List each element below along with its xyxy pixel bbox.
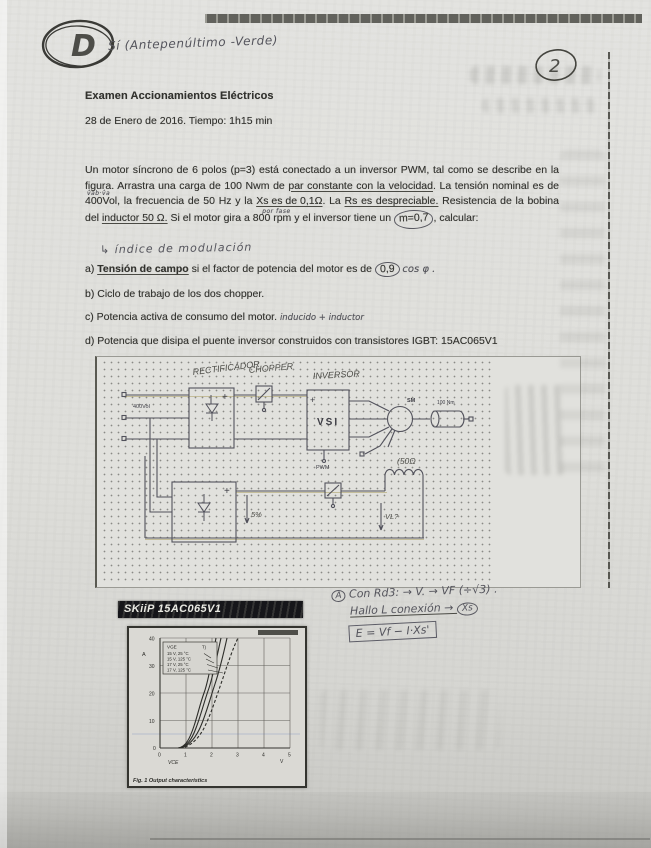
question-c: c) Potencia activa de consumo del motor.… (85, 311, 364, 323)
load-label: 100 Nm (437, 400, 455, 406)
underlined-rs: Rs es despreciable. (345, 195, 439, 207)
field-chopper-igbt-symbol (325, 483, 341, 508)
output-characteristics-svg: VGE Tj 15 V, 25 °C 15 V, 125 °C 17 V, 25… (130, 630, 302, 772)
page-number-circle: 2 (533, 46, 579, 84)
x-tick: 5 (288, 753, 291, 759)
handwritten-inducido-inductor: inducido + inductor (280, 313, 364, 323)
question-b: b) Ciclo de trabajo de los dos chopper. (85, 288, 264, 300)
circuit-figure: 400Vol + + VSI PWM SM 100 Nm + RECTIFICA… (95, 356, 581, 588)
legend-header-tj: Tj (202, 645, 206, 650)
input-voltage-label: 400Vol (133, 404, 150, 410)
hand-inversor: INVERSOR (313, 369, 361, 381)
hand-50ohm: (50Ω (397, 456, 416, 466)
y-tick: 0 (153, 746, 156, 752)
voltage-value: 400Volv̂ab·v̂a (85, 194, 117, 210)
underlined-inductor: inductor 50 Ω. (102, 212, 168, 224)
rectifier-plus: + (222, 392, 228, 403)
handwritten-cos-phi: cos φ . (402, 264, 435, 275)
circuit-wires (122, 386, 473, 542)
bottom-scan-line (150, 838, 650, 840)
datasheet-graph: VGE Tj 15 V, 25 °C 15 V, 125 °C 17 V, 25… (127, 626, 307, 788)
exam-date-line: 28 de Enero de 2016. Tiempo: 1h15 min (85, 115, 272, 127)
legend-row: 17 V, 125 °C (167, 668, 191, 673)
bleedthrough-smudge (482, 98, 597, 113)
page-fold-line (608, 52, 610, 588)
legend-header-vge: VGE (167, 645, 177, 650)
underlined-par-constante: par constante con la velocidad (288, 180, 433, 192)
exam-title: Examen Accionamientos Eléctricos (85, 90, 274, 102)
pwm-label: PWM (316, 465, 330, 471)
field-diode-symbol (198, 494, 210, 521)
question-a-label: a) (85, 263, 94, 275)
circuit-diagram-svg: 400Vol + + VSI PWM SM 100 Nm + RECTIFICA… (97, 357, 580, 587)
field-rectifier-plus: + (224, 486, 230, 497)
question-d: d) Potencia que disipa el puente inverso… (85, 335, 498, 347)
problem-text: , la frecuencia de 50 Hz y la (117, 195, 256, 207)
x-tick: 2 (210, 753, 213, 759)
question-a: a) Tensión de campo si el factor de pote… (85, 262, 435, 277)
bleedthrough-smudge (320, 690, 500, 750)
hand-drawn-circle: 2 (533, 46, 579, 84)
handwritten-voltage-annotation: v̂ab·v̂a (87, 186, 110, 202)
hand-circled-m07: m=0,7 (394, 209, 434, 229)
load-cylinder (431, 411, 473, 427)
motor-circle (388, 407, 413, 432)
left-page-edge (0, 0, 7, 848)
problem-text: . La tensión nominal es de (433, 180, 559, 192)
question-a-text: si el factor de potencia del motor es de (189, 263, 375, 275)
scan-artifact-band (205, 14, 642, 23)
legend-row: 17 V, 25 °C (167, 662, 189, 667)
vsi-label: VSI (317, 417, 339, 428)
underlined-xs: Xs es de 0,1Ωpor fase (256, 194, 322, 210)
hand-drawn-circle: D (38, 16, 118, 74)
y-tick: 40 (149, 637, 155, 643)
x-tick: 0 (158, 753, 161, 759)
x-tick: 4 (262, 753, 265, 759)
field-brush-wires (365, 429, 395, 454)
pwm-terminal (323, 460, 326, 463)
problem-text: , calcular: (434, 212, 479, 224)
handwritten-por-fase: por fase (262, 204, 290, 220)
x-axis-label: VCE (168, 760, 179, 766)
handwritten-solution-notes: A Con Rd3: → V. → VF (÷√3) . Hallo L con… (331, 578, 633, 642)
chopper-igbt-symbol (256, 386, 272, 412)
circled-xs: Xs (457, 602, 479, 616)
y-tick: 10 (149, 719, 155, 725)
page-number: 2 (549, 56, 560, 77)
legend-row: 15 V, 125 °C (167, 657, 191, 662)
question-c-text: c) Potencia activa de consumo del motor. (85, 311, 277, 323)
scanned-exam-page: D Sí (Antepenúltimo -Verde) 2 Examen Acc… (0, 0, 651, 848)
input-terminal-1 (122, 393, 126, 397)
hand-vl: VL? (385, 512, 399, 521)
y-unit: A (142, 652, 146, 658)
top-handwritten-note: Sí (Antepenúltimo -Verde) (108, 33, 279, 53)
arrow-vl (379, 503, 383, 530)
underlined-tension-campo: Tensión de campo (97, 263, 188, 275)
grade-letter: D (71, 29, 96, 64)
input-terminal-2 (122, 416, 126, 420)
handwritten-modulation-note: ↳ índice de modulación (100, 241, 253, 257)
problem-statement: Un motor síncrono de 6 polos (p=3) está … (85, 163, 559, 228)
grade-circle: D (38, 16, 118, 74)
problem-text: . La (322, 195, 344, 207)
graph-legend: VGE Tj 15 V, 25 °C 15 V, 125 °C 17 V, 25… (163, 642, 223, 674)
vsi-plus: + (310, 395, 315, 405)
field-coil (385, 469, 423, 475)
diode-symbol (206, 395, 218, 421)
scan-blob (258, 630, 298, 635)
y-tick: 30 (149, 664, 155, 670)
skiip-part-bar: SKiiP 15AC065V1 (118, 601, 303, 618)
x-unit: V (280, 759, 284, 765)
motor-label: SM (407, 398, 416, 404)
figure-caption: Fig. 1 Output characteristics (133, 778, 207, 784)
hand-circled-09: 0,9 (375, 262, 400, 278)
x-tick: 3 (236, 753, 239, 759)
field-terminal (360, 452, 364, 456)
arrow-5pct (245, 495, 249, 523)
legend-row: 15 V, 25 °C (167, 651, 189, 656)
boxed-formula: E = Vf − I·Xs' (348, 621, 437, 643)
y-tick: 20 (149, 692, 155, 698)
circled-A: A (331, 590, 346, 603)
x-tick: 1 (184, 753, 187, 759)
input-terminal-3 (122, 437, 126, 441)
hand-5pct: 5% (251, 510, 262, 519)
note-line-2-text: Hallo L conexión → (350, 601, 457, 618)
